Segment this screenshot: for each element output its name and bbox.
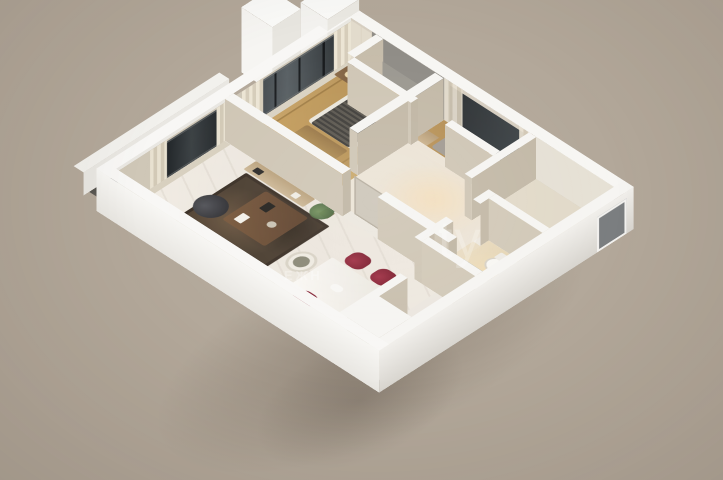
entry-door [597,198,627,252]
wall-face-south [342,169,350,217]
wall-face-west [465,174,472,221]
wall-face-west [414,237,421,284]
floorplan-3d [96,47,633,392]
wall-face-south [411,98,418,145]
scene-background: ty ЕЖН [0,0,723,480]
